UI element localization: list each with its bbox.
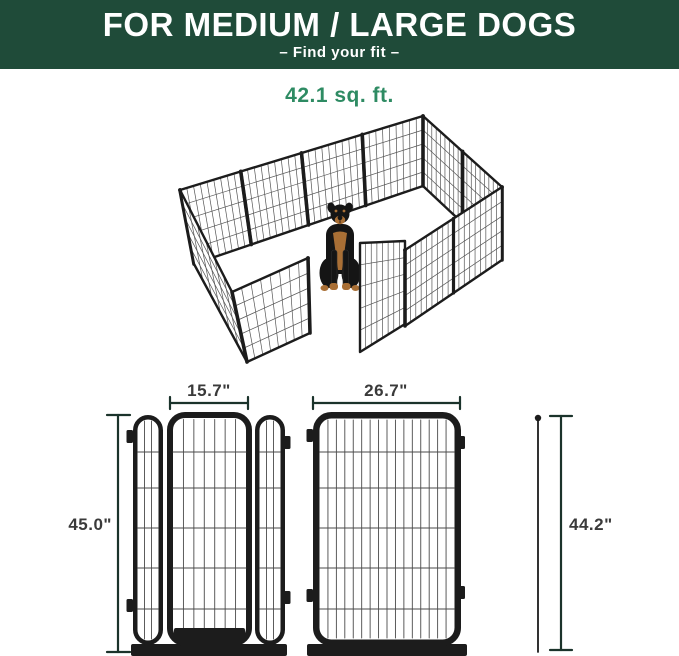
product-infographic: FOR MEDIUM / LARGE DOGS – Find your fit … xyxy=(0,0,679,656)
panel-height-label: 44.2" xyxy=(569,515,639,535)
door-width-label: 15.7" xyxy=(159,381,259,401)
door-panel-height-label: 45.0" xyxy=(44,515,112,535)
door-panel-diagram xyxy=(127,415,291,656)
panel-width-label: 26.7" xyxy=(336,381,436,401)
playpen-scene xyxy=(0,0,679,656)
regular-panel-diagram xyxy=(307,415,542,656)
